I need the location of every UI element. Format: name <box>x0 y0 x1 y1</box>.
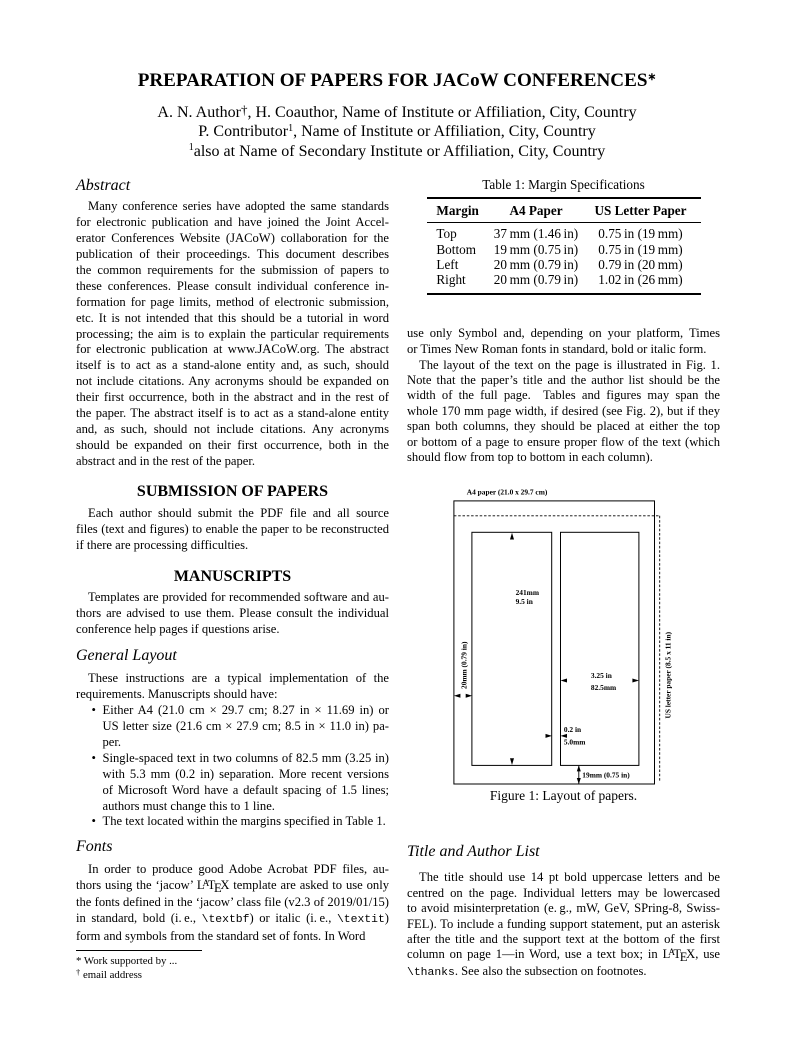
svg-text:A4 paper (21.0 x 29.7 cm): A4 paper (21.0 x 29.7 cm) <box>467 487 548 496</box>
svg-text:US letter paper (8.5 x 11 in): US letter paper (8.5 x 11 in) <box>664 631 673 718</box>
svg-text:0.2 in: 0.2 in <box>564 725 581 734</box>
svg-text:20mm (0.79 in): 20mm (0.79 in) <box>460 641 469 689</box>
svg-text:3.25 in: 3.25 in <box>591 671 612 680</box>
svg-text:9.5 in: 9.5 in <box>516 597 533 606</box>
svg-text:241mm: 241mm <box>516 588 540 597</box>
svg-text:82.5mm: 82.5mm <box>591 683 617 692</box>
svg-text:5.0mm: 5.0mm <box>564 737 586 746</box>
svg-text:19mm (0.75 in): 19mm (0.75 in) <box>582 770 630 779</box>
